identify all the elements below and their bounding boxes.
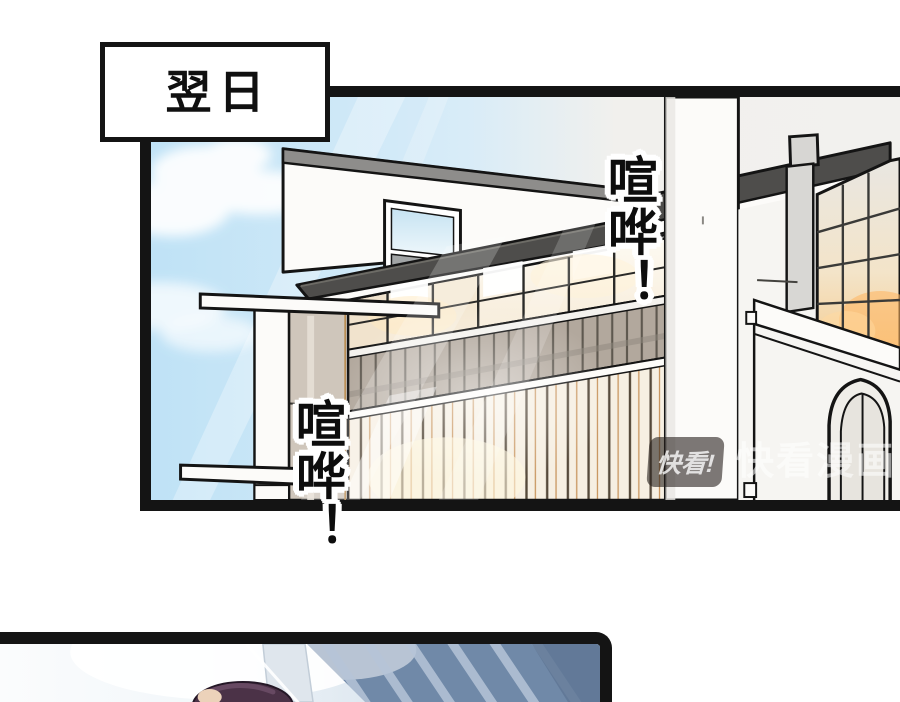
caption-text: 翌日 xyxy=(159,69,272,115)
comic-page: { "caption_box": { "text": "翌日" }, "sfx"… xyxy=(0,0,900,702)
sfx-crowd-noise-bottom: 喧哗！ xyxy=(292,398,342,554)
watermark: 快看! 快看漫画 xyxy=(648,437,896,487)
kuaikan-logo: 快看! xyxy=(646,437,724,487)
gray-pillar xyxy=(787,164,814,312)
bottom-panel xyxy=(0,632,612,702)
caption-box: 翌日 xyxy=(100,42,330,142)
skyscraper-scene xyxy=(0,644,600,702)
sfx-crowd-noise-top: 喧哗！ xyxy=(604,154,654,310)
chimney-cap xyxy=(790,135,819,167)
kuaikan-brand-text: 快看漫画 xyxy=(736,437,896,487)
